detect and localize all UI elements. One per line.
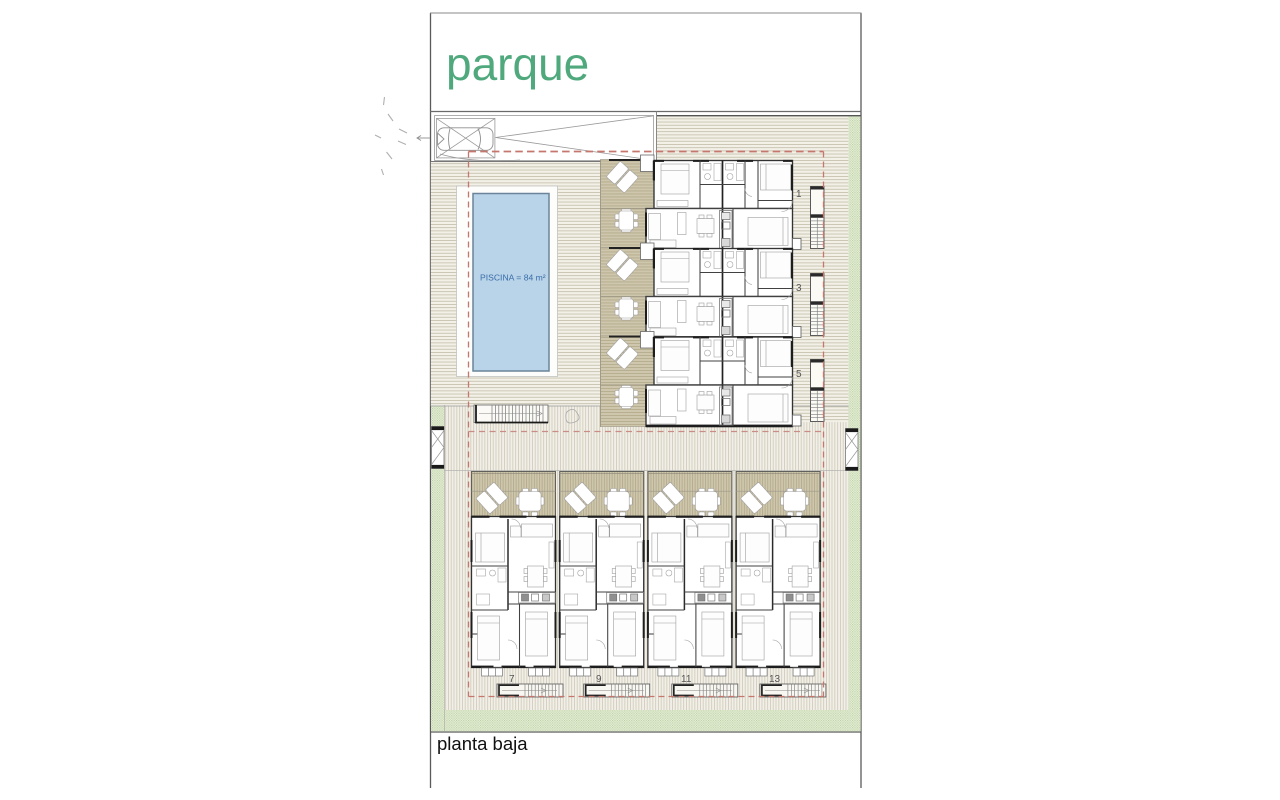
svg-text:PISCINA = 84 m²: PISCINA = 84 m² <box>480 273 546 283</box>
svg-text:7: 7 <box>509 674 515 685</box>
svg-text:planta baja: planta baja <box>437 733 528 754</box>
svg-text:13: 13 <box>769 674 781 685</box>
svg-text:3: 3 <box>796 283 802 294</box>
svg-text:5: 5 <box>796 369 802 380</box>
svg-text:11: 11 <box>681 674 692 685</box>
svg-text:parque: parque <box>446 38 589 90</box>
svg-text:1: 1 <box>796 189 802 200</box>
svg-text:9: 9 <box>596 674 602 685</box>
